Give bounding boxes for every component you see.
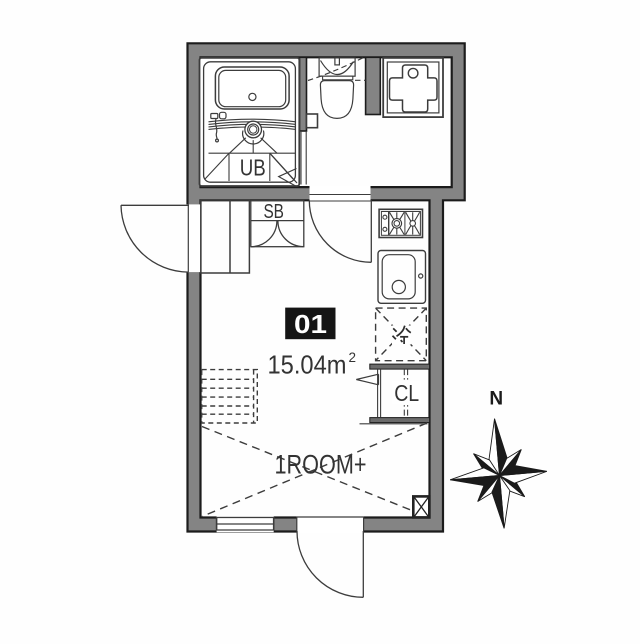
svg-text:N: N bbox=[489, 389, 503, 410]
svg-text:SB: SB bbox=[263, 201, 284, 223]
svg-text:UB: UB bbox=[240, 154, 266, 180]
svg-text:CL: CL bbox=[394, 380, 419, 406]
svg-text:15.04m: 15.04m bbox=[268, 350, 347, 380]
svg-text:2: 2 bbox=[349, 350, 357, 365]
svg-text:01: 01 bbox=[294, 309, 327, 339]
svg-text:1ROOM+: 1ROOM+ bbox=[275, 449, 367, 479]
